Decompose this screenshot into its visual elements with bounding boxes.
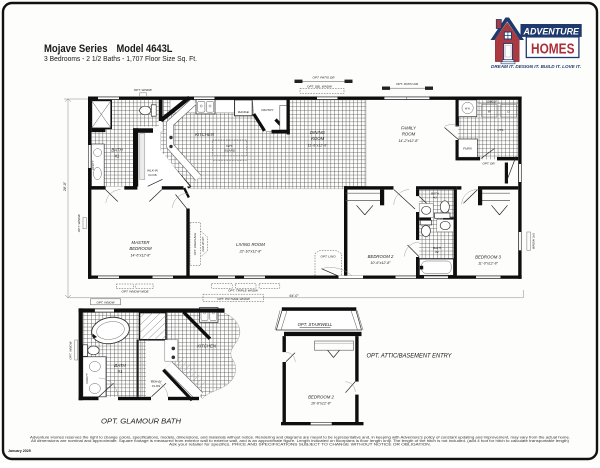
svg-text:10'-6"x12'-8": 10'-6"x12'-8" — [311, 402, 332, 406]
svg-text:Mojave Series: Mojave Series — [44, 43, 108, 55]
svg-text:KITCHEN: KITCHEN — [197, 344, 217, 349]
svg-text:ROOM: ROOM — [402, 132, 416, 137]
svg-text:OPT. PICTURE WNDW: OPT. PICTURE WNDW — [217, 297, 251, 301]
svg-text:OPT. PATIO DR: OPT. PATIO DR — [396, 82, 419, 86]
svg-text:WLK-IN: WLK-IN — [147, 169, 159, 173]
svg-text:14'-2"x12'-8": 14'-2"x12'-8" — [398, 139, 419, 143]
svg-text:UTIL.: UTIL. — [497, 128, 505, 132]
svg-text:OPT. PATIO DR: OPT. PATIO DR — [313, 76, 336, 80]
svg-text:CLOS: CLOS — [148, 173, 157, 177]
svg-text:BEDROOM 2: BEDROOM 2 — [308, 395, 334, 400]
svg-text:3 Bedrooms - 2 1/2 Baths - 1,7: 3 Bedrooms - 2 1/2 Baths - 1,707 Floor S… — [44, 56, 197, 63]
svg-text:BEDROOM: BEDROOM — [129, 246, 152, 251]
svg-text:KITCHEN: KITCHEN — [195, 132, 215, 137]
svg-text:OPT. LINO: OPT. LINO — [320, 254, 336, 258]
svg-text:ISLAND: ISLAND — [224, 149, 236, 153]
svg-text:Model 4643L: Model 4643L — [117, 43, 173, 55]
svg-text:CLOS: CLOS — [152, 384, 161, 388]
svg-text:Ask your retailer for specific: Ask your retailer for specifics. PRICE A… — [169, 442, 431, 446]
svg-text:BEDROOM 2: BEDROOM 2 — [368, 254, 394, 259]
svg-text:AVAIL W/ OPT.: AVAIL W/ OPT. — [202, 236, 205, 253]
svg-text:SHELF: SHELF — [487, 100, 498, 104]
svg-text:VANITY: VANITY — [91, 161, 95, 171]
svg-text:OPT. GLAMOUR BATH: OPT. GLAMOUR BATH — [101, 417, 182, 426]
svg-text:OPT. ATTIC/BASEMENT ENTRY: OPT. ATTIC/BASEMENT ENTRY — [367, 354, 453, 360]
svg-text:22'-10"x12'-8": 22'-10"x12'-8" — [238, 249, 262, 253]
svg-text:11'-6"x12'-6": 11'-6"x12'-6" — [308, 143, 329, 147]
svg-text:DREAM IT. DESIGN IT. BUILD I: DREAM IT. DESIGN IT. BUILD IT. LOVE IT. — [491, 64, 581, 69]
svg-text:OPT. TRIPLE WNDW: OPT. TRIPLE WNDW — [228, 288, 259, 292]
svg-text:January 2025: January 2025 — [8, 449, 31, 453]
svg-text:11'-0"x12'-8": 11'-0"x12'-8" — [478, 262, 499, 266]
svg-text:RANGE: RANGE — [238, 110, 250, 114]
svg-text:HOMES: HOMES — [531, 42, 575, 58]
svg-text:MASTER: MASTER — [132, 240, 150, 245]
svg-text:OPT. STAIRWELL: OPT. STAIRWELL — [298, 322, 333, 327]
svg-text:OPT. WNDW: OPT. WNDW — [96, 300, 115, 304]
svg-text:10'-6"x12'-8": 10'-6"x12'-8" — [370, 261, 391, 265]
svg-text:LIVING ROOM: LIVING ROOM — [236, 242, 265, 247]
svg-text:BEDROOM 3: BEDROOM 3 — [475, 255, 501, 260]
svg-text:OPT. WNDW WIDE: OPT. WNDW WIDE — [121, 290, 149, 294]
svg-text:OPT. WNDW: OPT. WNDW — [69, 340, 73, 359]
svg-text:OPT. DR: OPT. DR — [482, 161, 495, 165]
svg-text:W.H.: W.H. — [465, 106, 471, 110]
svg-text:VANITY: VANITY — [85, 372, 89, 384]
svg-text:BATH: BATH — [114, 363, 126, 368]
svg-text:ADVENTURE: ADVENTURE — [523, 26, 580, 36]
svg-text:FURN.: FURN. — [463, 147, 473, 151]
svg-text:OPT. WNDW: OPT. WNDW — [77, 213, 81, 232]
svg-text:ROOM: ROOM — [311, 136, 325, 141]
svg-text:OPT. DBL WNDW: OPT. DBL WNDW — [307, 84, 333, 88]
svg-text:#2: #2 — [435, 250, 439, 254]
svg-text:#1: #1 — [118, 369, 123, 374]
svg-text:FAMILY: FAMILY — [401, 126, 417, 131]
svg-text:#3: #3 — [433, 196, 437, 200]
svg-text:BATH: BATH — [111, 148, 123, 153]
svg-text:DINING: DINING — [310, 130, 326, 135]
svg-text:14'-6"x12'-8": 14'-6"x12'-8" — [130, 254, 151, 258]
svg-text:OPT. WNDW: OPT. WNDW — [134, 88, 153, 92]
svg-text:WNDW 3x5: WNDW 3x5 — [532, 233, 536, 249]
svg-text:OPT.: OPT. — [226, 144, 233, 148]
svg-text:64'-0": 64'-0" — [289, 294, 299, 298]
svg-text:28'-0": 28'-0" — [63, 181, 67, 192]
svg-text:#1: #1 — [115, 154, 120, 159]
svg-text:PANTRY: PANTRY — [261, 108, 274, 112]
svg-text:OPT. FIREPLACE: OPT. FIREPLACE — [193, 233, 197, 256]
